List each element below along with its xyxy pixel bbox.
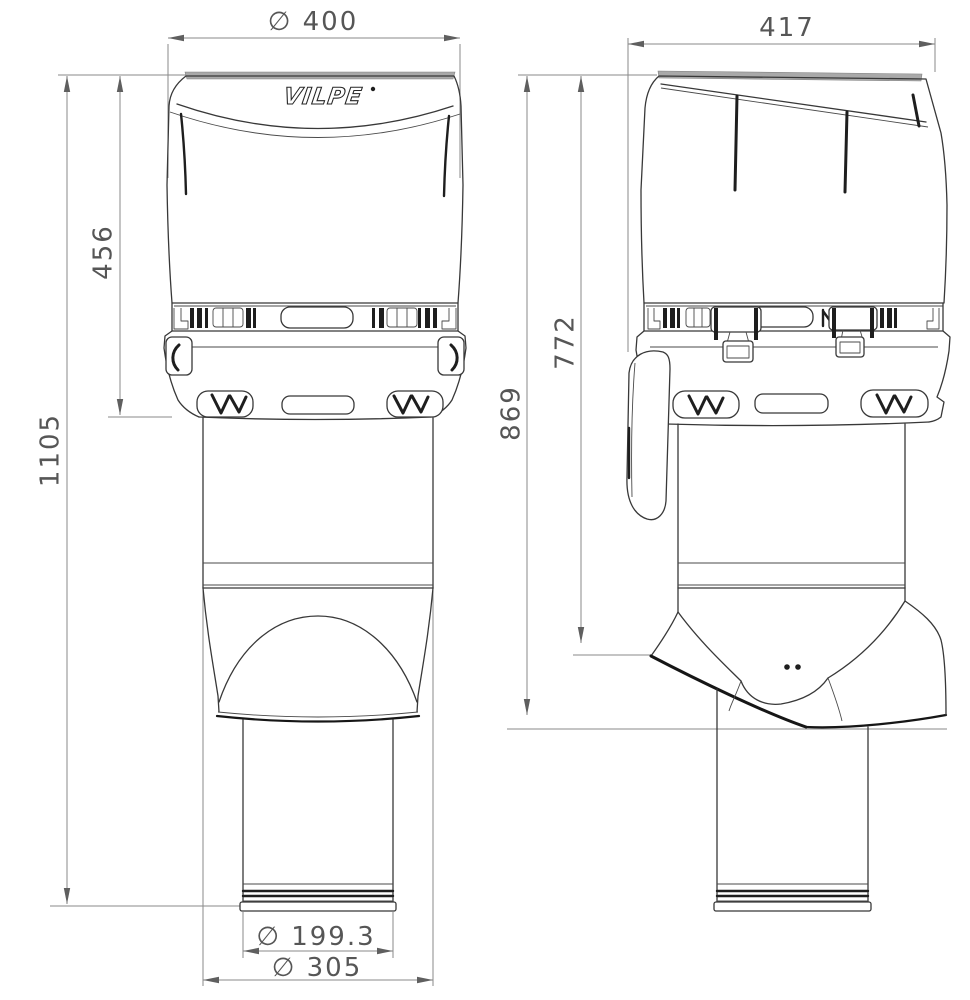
- vent-opening-right: [861, 390, 928, 417]
- front-view: ∅ 400 456 1105 ∅ 199.3: [36, 7, 467, 986]
- side-view: 417 869 772: [497, 13, 951, 911]
- vent-pipe-drawing: ∅ 400 456 1105 ∅ 199.3: [0, 0, 970, 1000]
- vilpe-logo: VILPE: [282, 84, 364, 110]
- side-cap: [641, 71, 947, 306]
- side-flashing: [651, 588, 946, 727]
- front-cap: VILPE: [167, 72, 463, 303]
- pipe-end-lip: [714, 902, 871, 911]
- logo-registered-dot: [371, 87, 375, 91]
- deflector-flap: [627, 351, 670, 520]
- front-lower-pipe: [240, 720, 396, 911]
- side-upper-pipe: [678, 424, 905, 588]
- dim-cap-height-label: 456: [89, 224, 119, 280]
- technical-drawing-page: ∅ 400 456 1105 ∅ 199.3: [0, 0, 970, 1000]
- vent-opening-left: [673, 391, 739, 418]
- dim-cap-width-label: 417: [759, 13, 815, 43]
- dim-flashing-height-label: 772: [551, 314, 581, 370]
- side-vent-section: [627, 303, 950, 520]
- dim-base-diameter-label: ∅ 305: [272, 953, 363, 983]
- dim-total-height-label: 1105: [36, 413, 66, 487]
- screw-hole-left: [784, 664, 790, 670]
- center-slot-opening: [281, 307, 353, 328]
- dim-pipe-diameter-label: ∅ 199.3: [256, 922, 375, 952]
- dim-overall-height-label: 869: [497, 385, 527, 441]
- clip-left: [711, 307, 761, 362]
- dim-cap-width: 417: [628, 13, 935, 352]
- pipe-end-lip: [240, 902, 396, 911]
- dim-cap-diameter-label: ∅ 400: [268, 7, 359, 37]
- front-upper-pipe: [203, 418, 433, 588]
- dim-total-height: 1105: [36, 75, 244, 906]
- front-vent-section: [164, 303, 466, 420]
- vent-opening-center: [282, 396, 354, 414]
- clip-right: [829, 307, 877, 357]
- front-flashing: [203, 588, 433, 722]
- vent-opening-center: [755, 394, 828, 413]
- dim-cap-height: 456: [89, 76, 173, 417]
- dim-pipe-diameter: ∅ 199.3: [243, 912, 393, 958]
- screw-hole-right: [795, 664, 801, 670]
